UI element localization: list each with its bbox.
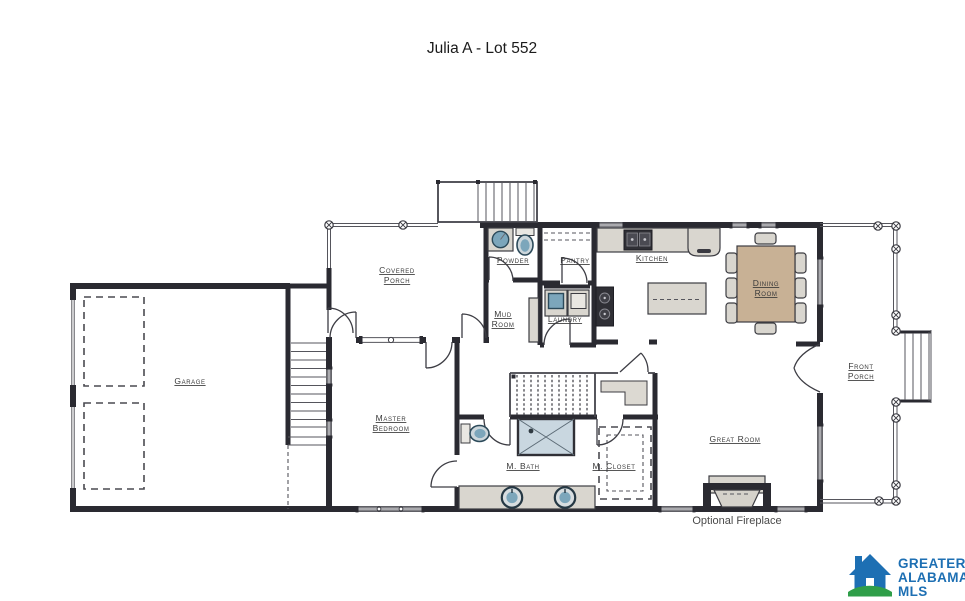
- powder-toilet: [516, 228, 534, 255]
- m-closet-label: M. Closet: [592, 461, 635, 471]
- wall-ovens: [596, 287, 614, 326]
- hall-stairs: [512, 375, 588, 416]
- laundry-label: Laundry: [548, 314, 582, 324]
- master-bedroom-label-1: Master: [376, 413, 407, 423]
- kitchen: Kitchen: [596, 228, 720, 326]
- master-bath: M. Bath: [459, 419, 595, 509]
- covered-porch-label-1: Covered: [379, 265, 415, 275]
- powder-room: Powder: [488, 228, 534, 265]
- optional-fireplace-note: Optional Fireplace: [692, 515, 781, 527]
- dining-room: Dining Room: [726, 233, 806, 334]
- garage-stairs: [288, 343, 329, 445]
- laundry: Laundry: [544, 285, 590, 325]
- garage-door-dashed-2: [84, 403, 144, 489]
- dining-room-label-1: Dining: [753, 278, 779, 288]
- wc-toilet: [461, 424, 489, 443]
- dining-room-label-2: Room: [755, 288, 778, 298]
- deck-stairs: [436, 180, 537, 222]
- floor-plan-drawing: Julia A - Lot 552 Garage: [0, 0, 965, 601]
- pantry-label: Pantry: [560, 255, 590, 265]
- pantry-shelves: [544, 233, 591, 240]
- shower: [518, 419, 574, 455]
- mud-bench: [529, 298, 539, 342]
- range-cooktop: [624, 230, 652, 250]
- m-bath-label: M. Bath: [506, 461, 539, 471]
- garage-door-dashed-1: [84, 297, 144, 386]
- floor-plan-page: Julia A - Lot 552 Garage: [0, 0, 965, 601]
- garage: Garage: [72, 286, 333, 509]
- mud-room: Mud Room: [492, 298, 539, 342]
- master-bedroom: Master Bedroom: [373, 413, 410, 433]
- refrigerator: [688, 228, 720, 256]
- covered-porch-label-2: Porch: [384, 275, 410, 285]
- kitchen-label: Kitchen: [636, 253, 668, 263]
- plan-title: Julia A - Lot 552: [427, 40, 537, 57]
- logo-line-2: ALABAMA: [898, 570, 965, 585]
- porch-steps: [899, 330, 931, 403]
- great-room-label: Great Room: [709, 434, 760, 444]
- logo-line-1: GREATER: [898, 556, 965, 571]
- mls-logo: GREATER ALABAMA MLS: [848, 554, 965, 599]
- fireplace: [703, 476, 771, 509]
- front-porch-label-2: Porch: [848, 371, 874, 381]
- double-vanity: [459, 486, 595, 509]
- front-porch: Front Porch: [820, 222, 931, 505]
- powder-label: Powder: [497, 255, 529, 265]
- hall-closet: [601, 381, 647, 405]
- master-bedroom-label-2: Bedroom: [373, 423, 410, 433]
- closet-counter: [601, 381, 647, 405]
- great-room: Great Room Optional Fireplace: [692, 434, 781, 527]
- mud-room-label-1: Mud: [494, 309, 512, 319]
- garage-label: Garage: [174, 376, 205, 386]
- kitchen-island: [648, 283, 706, 314]
- front-porch-label-1: Front: [848, 361, 873, 371]
- master-closet: M. Closet: [592, 427, 651, 499]
- pantry: Pantry: [544, 233, 591, 265]
- house-icon: [848, 554, 892, 597]
- mud-room-label-2: Room: [492, 319, 515, 329]
- logo-line-3: MLS: [898, 584, 928, 599]
